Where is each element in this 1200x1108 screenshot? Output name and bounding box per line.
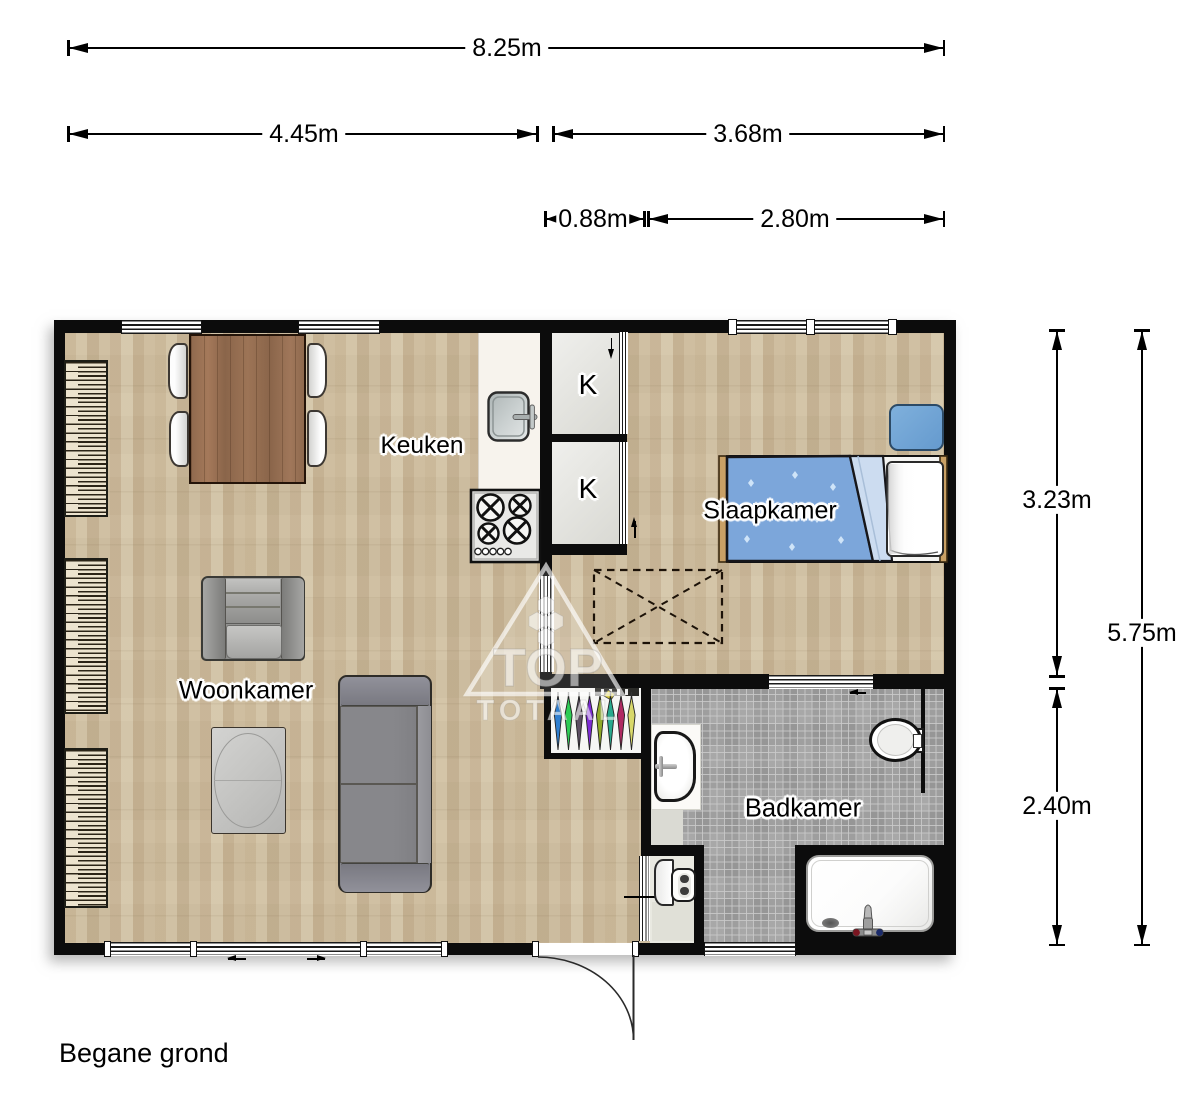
svg-text:TOTAAL: TOTAAL xyxy=(477,695,622,727)
svg-text:TOP: TOP xyxy=(493,638,603,698)
